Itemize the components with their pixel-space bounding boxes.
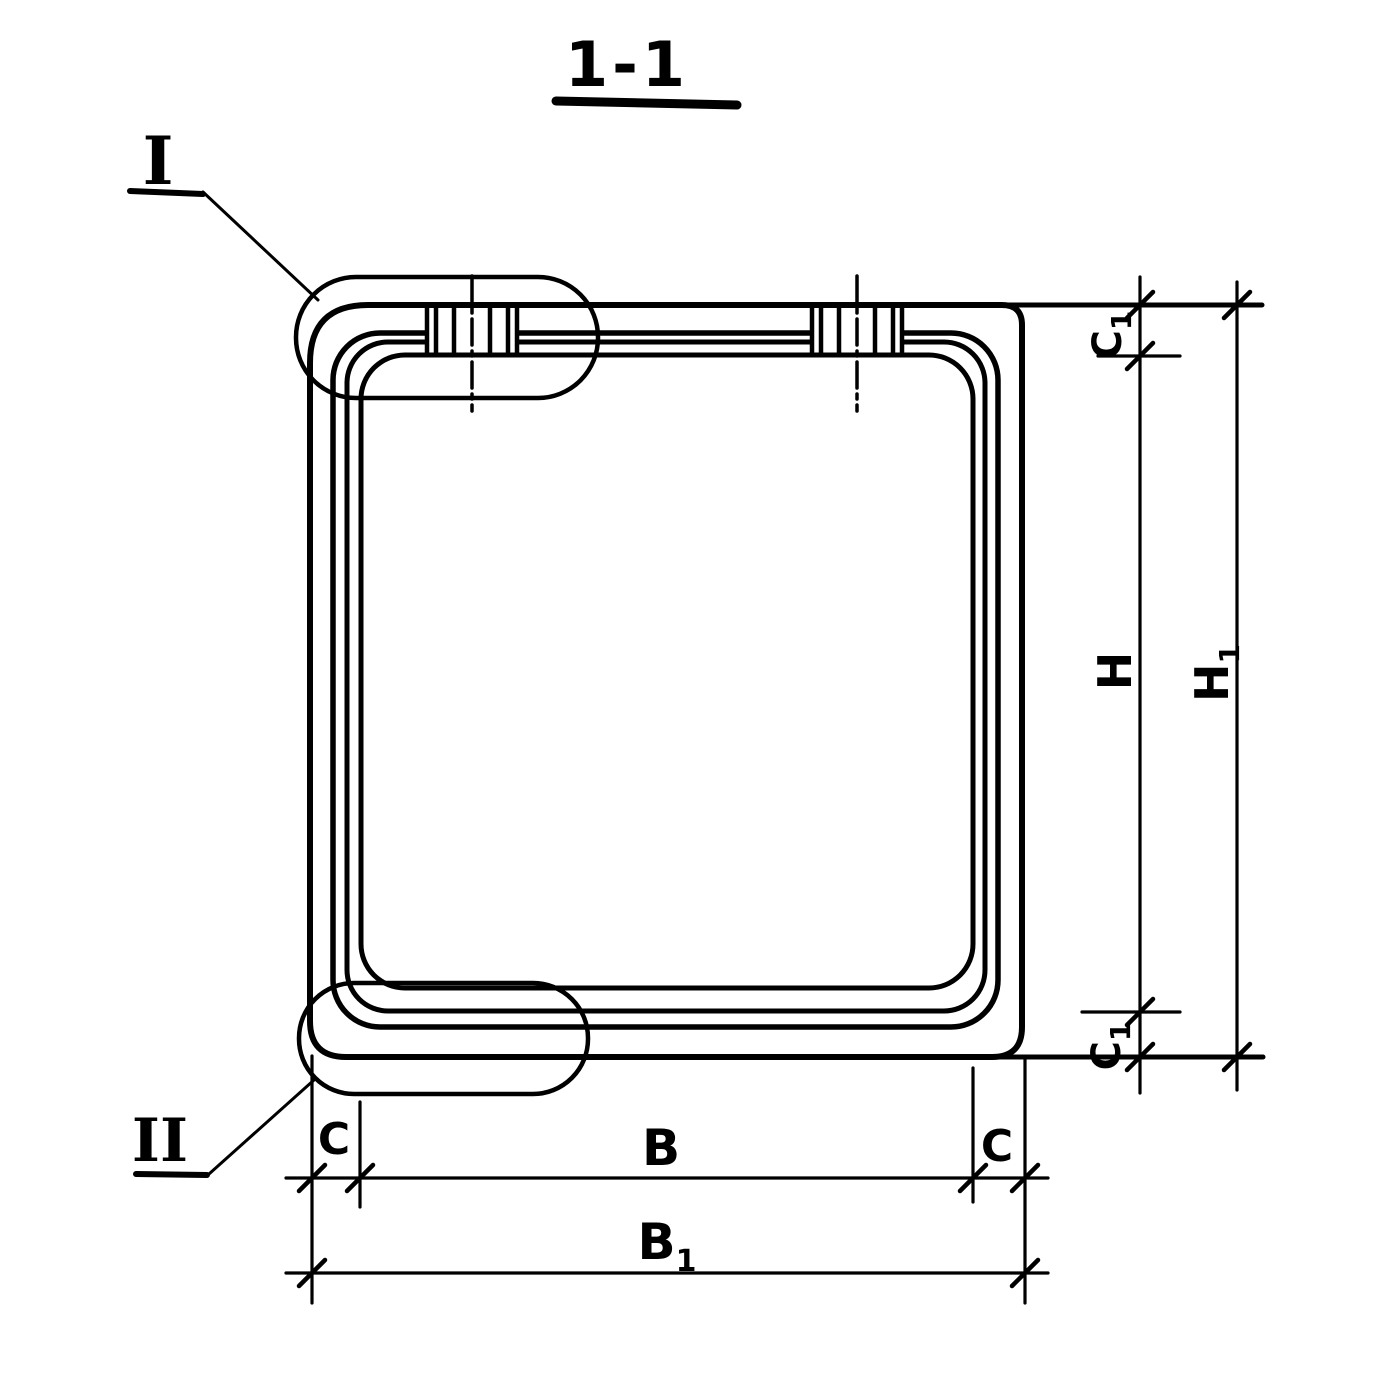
detail-callout-I-underline	[130, 191, 203, 194]
view-title-text: 1-1	[565, 28, 689, 101]
dim-label-c-left: C	[318, 1114, 350, 1165]
dim-label-b: B	[642, 1119, 680, 1177]
view-title-underline	[556, 101, 737, 105]
drawing-sheet: I II 1-1	[0, 0, 1374, 1379]
detail-callout-I-label: I	[143, 122, 174, 200]
detail-callout-II-label: II	[132, 1106, 188, 1176]
dim-label-c-right: C	[981, 1121, 1013, 1172]
dim-label-h: H	[1088, 652, 1142, 691]
section-drawing-1-1: I II 1-1	[0, 0, 1374, 1379]
detail-callout-II-underline	[136, 1174, 207, 1175]
